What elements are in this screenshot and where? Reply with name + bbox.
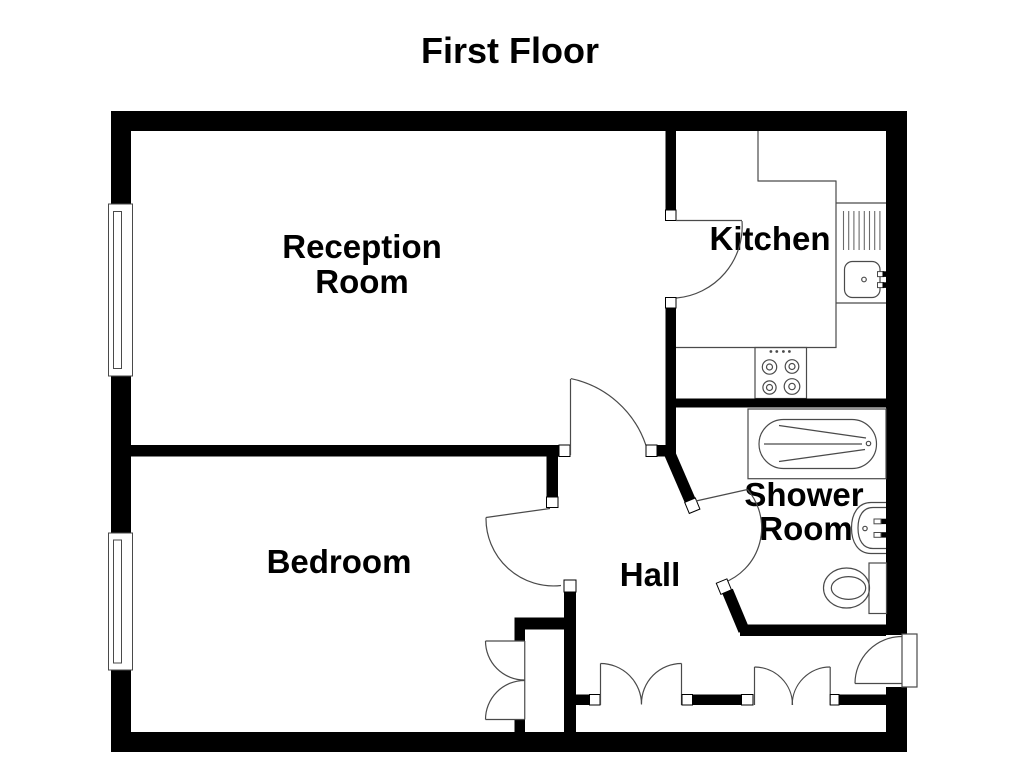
svg-text:Room: Room	[315, 263, 409, 300]
svg-text:Shower: Shower	[744, 476, 863, 513]
svg-text:Kitchen: Kitchen	[709, 220, 830, 257]
svg-text:Reception: Reception	[282, 228, 442, 265]
svg-text:Hall: Hall	[620, 556, 681, 593]
svg-text:Room: Room	[759, 510, 853, 547]
svg-text:Bedroom: Bedroom	[267, 543, 412, 580]
svg-text:First Floor: First Floor	[421, 30, 599, 71]
